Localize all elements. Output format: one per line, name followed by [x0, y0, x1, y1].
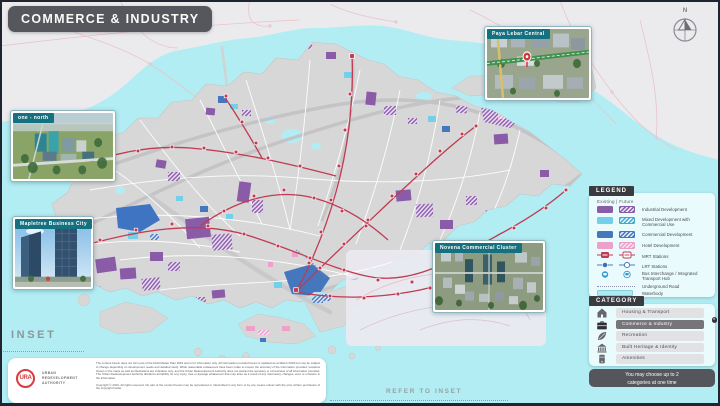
- industrial-future-swatch: [619, 206, 635, 213]
- disclaimer-paragraph: The content herein does not form part of…: [96, 362, 320, 381]
- category-button-amenities[interactable]: Amenities: [616, 354, 704, 364]
- page-title: COMMERCE & INDUSTRY: [8, 6, 212, 32]
- inset-boundary-dotted-line: [0, 351, 84, 352]
- mapletree-photo: [15, 219, 91, 287]
- category-row-housing: Housing & Transport: [589, 308, 715, 318]
- paya-lebar-aerial-photo: [487, 29, 589, 98]
- mrt-future-icon: [619, 251, 635, 259]
- hotel-future-swatch: [619, 242, 635, 249]
- briefcase-icon: [596, 320, 608, 330]
- mixed-future-swatch: [619, 217, 635, 224]
- amenities-icon: [596, 354, 608, 364]
- category-title: CATEGORY: [589, 296, 644, 306]
- poster-edge-top: [0, 0, 720, 2]
- commercial-future-swatch: [619, 231, 635, 238]
- category-button-housing-transport[interactable]: Housing & Transport: [616, 308, 704, 318]
- map-cutoff-dotted-line: [330, 400, 508, 401]
- commercial-existing-swatch: [597, 231, 613, 238]
- ura-logo-monogram: URA: [16, 369, 35, 388]
- inset-label: INSET: [11, 329, 56, 341]
- refer-to-inset-label: REFER TO INSET: [386, 388, 462, 395]
- category-button-built-heritage-identity[interactable]: Built Heritage & Identity: [616, 343, 704, 353]
- category-note: You may choose up to 2 categories at one…: [589, 369, 715, 387]
- ura-logo: URA URBAN REDEVELOPMENT AUTHORITY: [16, 366, 88, 396]
- underground-road-swatch: [597, 286, 635, 287]
- heritage-building-icon: [596, 343, 608, 353]
- category-row-commerce: Commerce & Industry ✕: [589, 320, 715, 330]
- photo-inset-label: Novena Commercial Cluster: [435, 243, 522, 253]
- waterbody-swatch: [597, 290, 633, 296]
- mrt-existing-icon: [597, 251, 613, 259]
- copyright-paragraph: Copyright © 2019. All rights reserved. N…: [96, 384, 320, 392]
- industrial-existing-swatch: [597, 206, 613, 213]
- compass-north-label: N: [668, 8, 702, 14]
- photo-inset-novena: Novena Commercial Cluster: [432, 240, 546, 313]
- legend-title: LEGEND: [589, 186, 634, 196]
- photo-inset-label: Paya Lebar Central: [487, 29, 550, 39]
- commerce-industry-map-screen: COMMERCE & INDUSTRY N one - north: [0, 0, 720, 406]
- leaf-icon: [596, 331, 608, 341]
- category-button-recreation[interactable]: Recreation: [616, 331, 704, 341]
- photo-inset-label: one - north: [13, 113, 54, 123]
- disclaimer-text: The content herein does not form part of…: [96, 362, 320, 391]
- footer-disclaimer-box: URA URBAN REDEVELOPMENT AUTHORITY The co…: [8, 358, 326, 403]
- home-icon: [596, 308, 608, 318]
- novena-aerial-photo: [435, 243, 543, 310]
- category-row-amenities: Amenities: [589, 354, 715, 364]
- category-row-recreation: Recreation: [589, 331, 715, 341]
- bus-interchange-existing-icon: [597, 270, 613, 279]
- photo-inset-one-north: one - north: [10, 110, 116, 182]
- compass: N: [668, 8, 702, 48]
- category-row-heritage: Built Heritage & Identity: [589, 343, 715, 353]
- photo-inset-mapletree: Mapletree Business City: [12, 216, 94, 290]
- close-icon[interactable]: ✕: [712, 317, 718, 323]
- photo-inset-label: Mapletree Business City: [15, 219, 92, 229]
- hotel-existing-swatch: [597, 242, 613, 249]
- lrt-future-icon: [619, 261, 635, 269]
- mixed-existing-swatch: [597, 217, 613, 224]
- category-button-commerce-industry[interactable]: Commerce & Industry: [616, 320, 704, 330]
- bus-interchange-future-icon: [619, 270, 635, 279]
- poster-edge-left: [0, 0, 2, 406]
- photo-inset-paya-lebar: Paya Lebar Central: [484, 26, 592, 101]
- legend-columns-header: Existing | Future: [597, 199, 634, 204]
- lrt-existing-icon: [597, 261, 613, 269]
- ura-logo-org-name: URBAN REDEVELOPMENT AUTHORITY: [42, 371, 78, 386]
- compass-rose-icon: [671, 15, 699, 43]
